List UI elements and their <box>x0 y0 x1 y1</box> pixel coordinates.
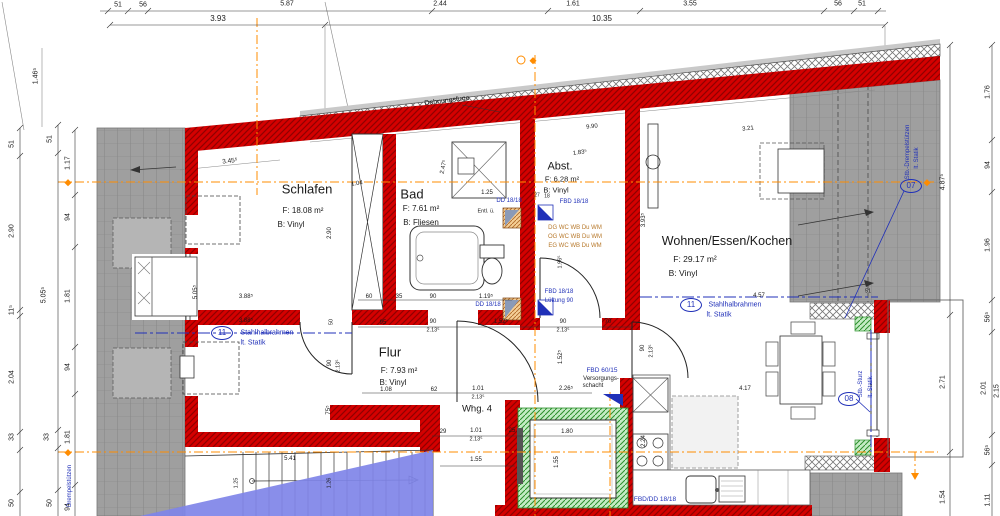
chair <box>823 372 835 396</box>
roof-window-2 <box>113 348 171 398</box>
wall-flur-north-2 <box>396 310 428 325</box>
chair <box>791 407 815 419</box>
fbd-symbols <box>538 205 623 406</box>
bath-fixtures <box>410 142 506 290</box>
elevator-door <box>517 428 523 484</box>
chair <box>823 342 835 366</box>
sink-icon <box>686 476 716 503</box>
wall-flur-south <box>330 405 440 420</box>
bathtub-icon <box>410 226 484 290</box>
chair <box>766 342 778 366</box>
roof-area-bottom-right <box>805 473 902 516</box>
elevator-shaft <box>517 408 628 508</box>
door-arc-wohnen <box>632 322 688 378</box>
door-arc-entry <box>457 321 538 402</box>
dining-table <box>780 336 822 404</box>
window-east <box>871 333 877 437</box>
toilet-tank <box>480 245 504 258</box>
chair <box>791 322 815 334</box>
floor-plan: 51565.872.441.613.5556513.9310.35512.901… <box>0 0 1000 516</box>
leader-08 <box>856 399 870 412</box>
chair <box>766 372 778 396</box>
wall-schlafen-south <box>185 432 420 447</box>
sideboard <box>778 149 824 193</box>
kitchen-island <box>672 396 738 468</box>
wall-abst-wohnen <box>625 86 640 322</box>
toilet-icon <box>482 258 502 284</box>
wall-flur-north-1 <box>198 310 300 325</box>
dresser <box>180 356 194 378</box>
door-arc-schlafen <box>300 322 352 374</box>
bed <box>135 257 197 316</box>
wall-bad-abst <box>520 119 535 318</box>
radiator-icon <box>648 124 658 208</box>
terrace-outline <box>888 300 963 457</box>
roof-area-left <box>97 128 185 516</box>
floor-plan-drawing <box>0 0 1000 516</box>
